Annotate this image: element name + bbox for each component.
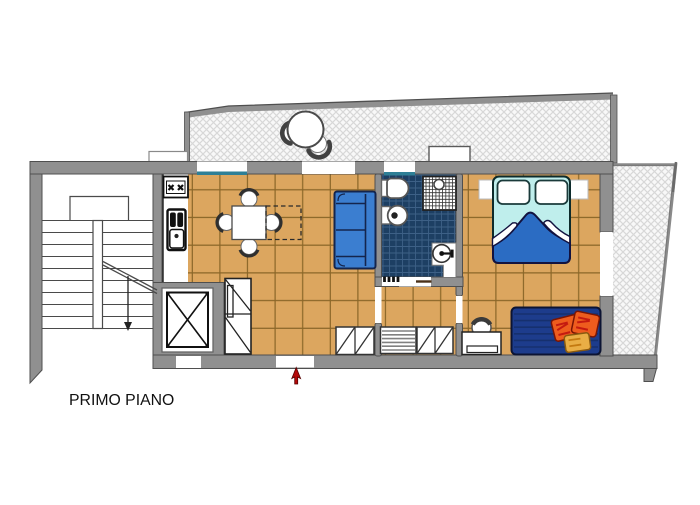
svg-text:PRIMO PIANO: PRIMO PIANO — [69, 392, 174, 409]
